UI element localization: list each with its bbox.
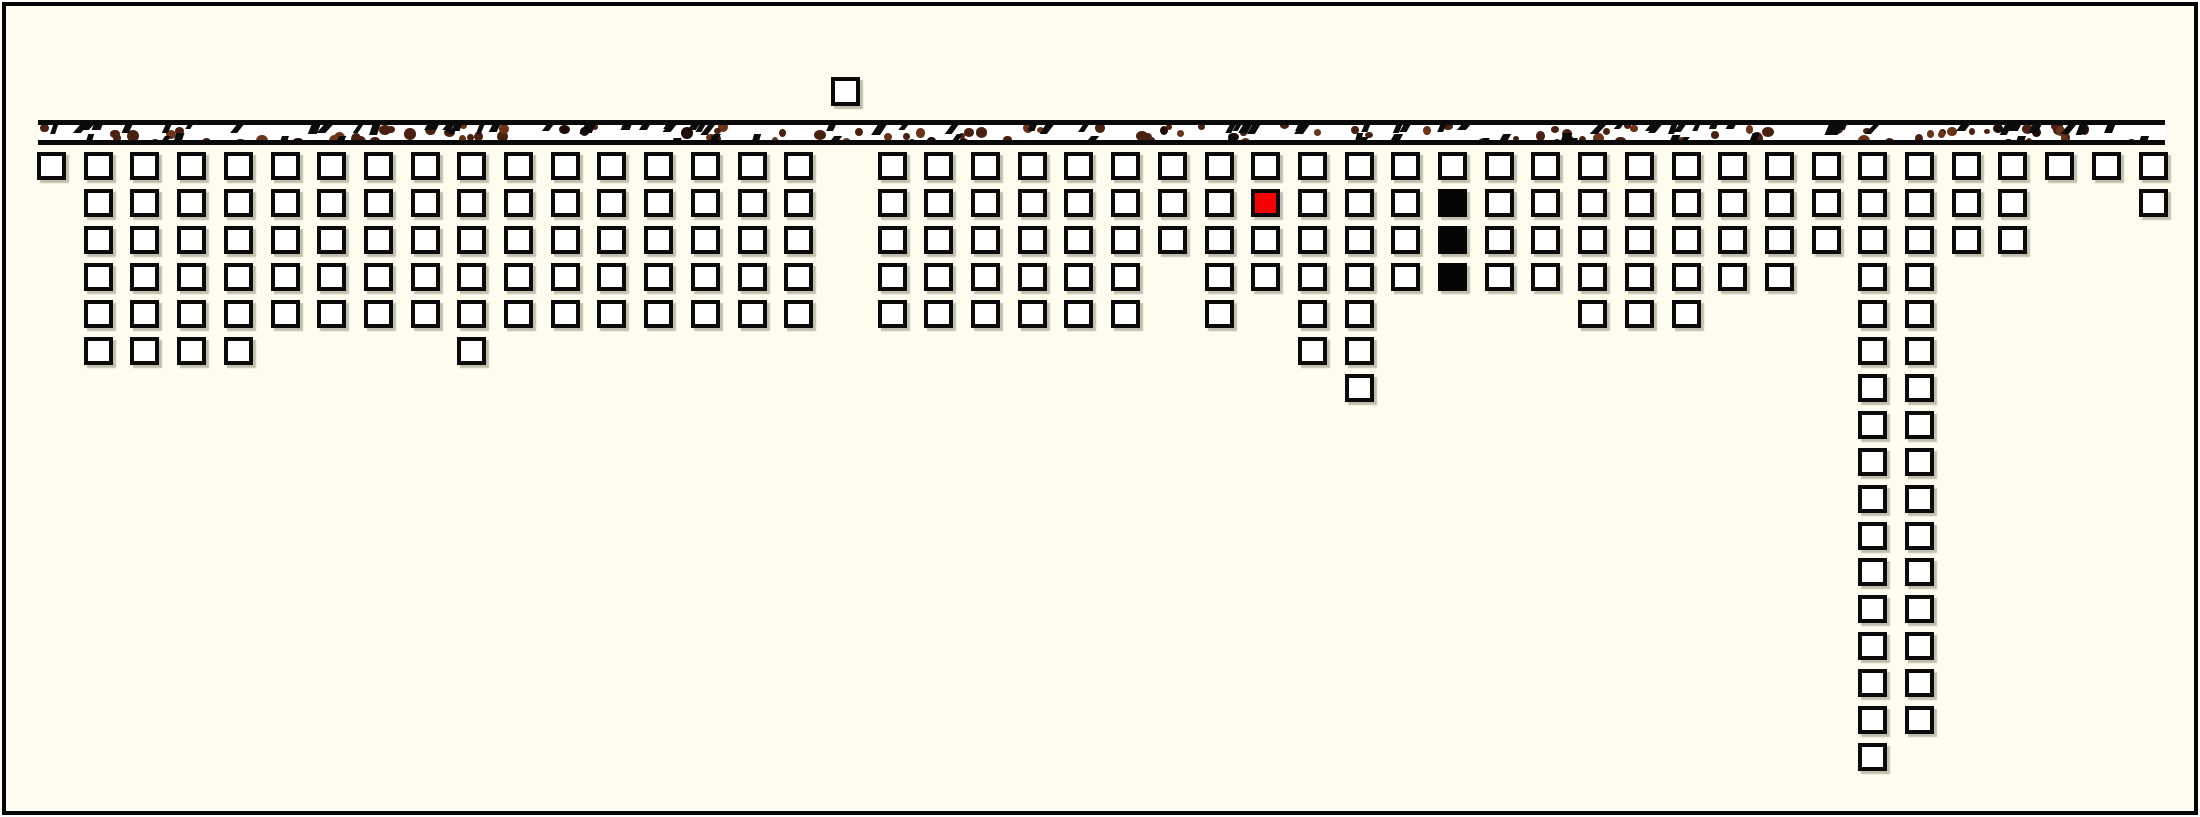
grid-cell — [971, 263, 1000, 291]
grid-cell — [457, 300, 486, 328]
grid-cell — [738, 226, 767, 254]
grid-cell — [1578, 300, 1607, 328]
grid-cell — [224, 300, 253, 328]
speckle-tick — [898, 123, 909, 130]
speckle-blob — [884, 133, 892, 141]
grid-cell — [1905, 669, 1934, 697]
grid-cell — [1531, 263, 1560, 291]
grid-cell — [784, 189, 813, 217]
grid-cell — [1485, 189, 1514, 217]
grid-cell — [691, 226, 720, 254]
speckle-blob — [150, 139, 160, 145]
speckle-tick — [336, 136, 346, 142]
grid-cell — [411, 226, 440, 254]
grid-cell — [738, 189, 767, 217]
grid-cell — [1672, 300, 1701, 328]
grid-cell — [1018, 226, 1047, 254]
grid-cell — [691, 263, 720, 291]
grid-cell — [1064, 226, 1093, 254]
speckle-blob — [976, 127, 988, 138]
grid-cell — [364, 226, 393, 254]
speckle-tick — [86, 134, 95, 142]
speckle-blob — [1938, 131, 1945, 138]
grid-cell — [924, 189, 953, 217]
speckle-tick — [1078, 123, 1090, 132]
grid-cell — [317, 152, 346, 180]
grid-cell — [644, 226, 673, 254]
speckle-blob — [499, 124, 509, 134]
grid-cell — [1298, 300, 1327, 328]
grid-cell — [1158, 152, 1187, 180]
speckle-blob — [779, 129, 786, 137]
grid-cell — [457, 263, 486, 291]
grid-cell — [224, 226, 253, 254]
speckle-blob — [916, 128, 924, 138]
speckle-tick — [230, 123, 244, 133]
grid-cell — [1858, 595, 1887, 623]
grid-cell — [1905, 595, 1934, 623]
grid-cell — [1298, 263, 1327, 291]
grid-cell — [130, 152, 159, 180]
speckle-blob — [2124, 142, 2133, 145]
speckle-blob — [1618, 141, 1625, 145]
grid-cell — [597, 300, 626, 328]
speckle-blob — [2026, 138, 2032, 144]
grid-cell — [924, 263, 953, 291]
block-columns-canvas — [0, 0, 2200, 817]
grid-cell — [1905, 632, 1934, 660]
grid-cell — [1672, 226, 1701, 254]
grid-cell — [1905, 263, 1934, 291]
speckle-blob — [1593, 133, 1604, 144]
grid-cell — [317, 300, 346, 328]
grid-cell — [130, 226, 159, 254]
grid-cell — [784, 263, 813, 291]
grid-cell — [1391, 226, 1420, 254]
grid-cell — [411, 300, 440, 328]
grid-cell — [84, 189, 113, 217]
speckle-blob — [1166, 124, 1172, 130]
speckle-blob — [2061, 135, 2068, 142]
grid-cell — [878, 189, 907, 217]
grid-cell — [1905, 706, 1934, 734]
grid-cell — [1625, 189, 1654, 217]
speckle-blob — [2009, 141, 2020, 145]
speckle-blob — [115, 141, 123, 145]
grid-cell — [878, 226, 907, 254]
speckle-blob — [1314, 129, 1321, 136]
speckle-tick — [353, 123, 365, 133]
grid-cell — [1018, 189, 1047, 217]
speckle-blob — [1615, 137, 1626, 145]
grid-cell — [130, 300, 159, 328]
grid-cell — [1905, 448, 1934, 476]
grid-cell — [738, 263, 767, 291]
speckle-blob — [638, 140, 649, 145]
speckle-blob — [340, 141, 351, 145]
grid-cell — [1251, 263, 1280, 291]
grid-cell — [1858, 632, 1887, 660]
grid-cell — [1205, 226, 1234, 254]
grid-cell — [84, 263, 113, 291]
grid-cell — [691, 189, 720, 217]
speckle-blob — [1280, 121, 1289, 129]
black-cell — [1438, 263, 1467, 291]
grid-cell — [1672, 152, 1701, 180]
speckle-blob — [1177, 130, 1184, 137]
grid-cell — [1531, 152, 1560, 180]
speckle-blob — [1984, 129, 1990, 134]
speckle-blob — [120, 140, 130, 145]
speckle-blob — [814, 130, 826, 140]
grid-cell — [1812, 226, 1841, 254]
grid-cell — [2139, 152, 2168, 180]
speckle-tick — [621, 123, 632, 130]
speckle-blob — [1762, 127, 1774, 137]
grid-cell — [878, 263, 907, 291]
speckle-blob — [559, 125, 570, 134]
grid-cell — [597, 189, 626, 217]
grid-cell — [1905, 558, 1934, 586]
black-cell — [1438, 189, 1467, 217]
grid-cell — [1345, 374, 1374, 402]
grid-cell — [1018, 152, 1047, 180]
grid-cell — [1952, 189, 1981, 217]
speckle-blob — [927, 137, 936, 145]
grid-cell — [1672, 263, 1701, 291]
grid-cell — [317, 263, 346, 291]
grid-cell — [1111, 152, 1140, 180]
grid-cell — [691, 152, 720, 180]
grid-cell — [1905, 374, 1934, 402]
grid-cell — [878, 300, 907, 328]
grid-cell — [1298, 189, 1327, 217]
speckle-blob — [1346, 142, 1353, 145]
grid-cell — [504, 152, 533, 180]
grid-cell — [971, 300, 1000, 328]
floating-cell — [831, 77, 860, 106]
grid-cell — [1345, 263, 1374, 291]
grid-cell — [1111, 226, 1140, 254]
grid-cell — [1858, 558, 1887, 586]
grid-cell — [1718, 152, 1747, 180]
grid-cell — [1064, 300, 1093, 328]
grid-cell — [224, 263, 253, 291]
grid-cell — [1858, 522, 1887, 550]
grid-cell — [784, 226, 813, 254]
grid-cell — [1205, 189, 1234, 217]
speckle-blob — [40, 124, 48, 133]
grid-cell — [84, 300, 113, 328]
grid-cell — [551, 263, 580, 291]
grid-cell — [37, 152, 66, 180]
grid-cell — [317, 226, 346, 254]
grid-cell — [1765, 189, 1794, 217]
speckle-tick — [50, 123, 59, 134]
speckle-blob — [1630, 125, 1637, 133]
speckle-blob — [467, 134, 474, 141]
grid-cell — [411, 152, 440, 180]
grid-cell — [364, 263, 393, 291]
speckle-blob — [1579, 136, 1586, 144]
grid-cell — [130, 337, 159, 365]
grid-cell — [177, 300, 206, 328]
grid-cell — [1485, 263, 1514, 291]
speckle-blob — [772, 137, 778, 143]
grid-cell — [1858, 411, 1887, 439]
red-cell — [1251, 189, 1280, 217]
grid-cell — [1858, 226, 1887, 254]
grid-cell — [1391, 189, 1420, 217]
speckle-blob — [90, 140, 99, 145]
grid-cell — [457, 337, 486, 365]
grid-cell — [597, 263, 626, 291]
grid-cell — [1998, 152, 2027, 180]
grid-cell — [1625, 152, 1654, 180]
grid-cell — [1064, 189, 1093, 217]
black-cell — [1438, 226, 1467, 254]
grid-cell — [1765, 226, 1794, 254]
grid-cell — [1205, 300, 1234, 328]
speckle-tick — [280, 136, 289, 142]
grid-cell — [411, 263, 440, 291]
grid-cell — [738, 152, 767, 180]
grid-cell — [1858, 669, 1887, 697]
grid-cell — [551, 226, 580, 254]
grid-cell — [1018, 300, 1047, 328]
grid-cell — [1064, 263, 1093, 291]
speckle-blob — [1198, 123, 1204, 130]
grid-cell — [84, 337, 113, 365]
speckle-blob — [1927, 130, 1934, 138]
speckle-tick — [542, 123, 555, 131]
grid-cell — [1812, 189, 1841, 217]
speckle-tick — [1390, 134, 1403, 142]
grid-cell — [364, 300, 393, 328]
grid-cell — [364, 189, 393, 217]
grid-cell — [691, 300, 720, 328]
grid-cell — [504, 263, 533, 291]
grid-cell — [177, 337, 206, 365]
grid-cell — [1064, 152, 1093, 180]
speckle-tick — [185, 123, 194, 129]
speckle-blob — [952, 142, 963, 145]
grid-cell — [1905, 300, 1934, 328]
speckle-tick — [945, 123, 960, 134]
speckle-blob — [1095, 123, 1105, 133]
speckle-blob — [1241, 138, 1250, 145]
speckle-tick — [174, 133, 185, 142]
speckle-blob — [235, 139, 246, 145]
grid-cell — [130, 263, 159, 291]
speckle-tick — [1499, 134, 1512, 142]
speckle-blob — [1030, 141, 1037, 145]
grid-cell — [1718, 189, 1747, 217]
speckle-tick — [827, 123, 837, 131]
grid-cell — [924, 300, 953, 328]
speckle-blob — [416, 140, 427, 145]
grid-cell — [2045, 152, 2074, 180]
grid-cell — [551, 300, 580, 328]
grid-cell — [971, 226, 1000, 254]
speckle-tick — [1561, 133, 1572, 142]
speckle-tick — [2016, 136, 2026, 142]
grid-cell — [1531, 226, 1560, 254]
speckle-blob — [1136, 131, 1148, 141]
grid-cell — [644, 300, 673, 328]
grid-cell — [177, 263, 206, 291]
speckle-blob — [1553, 139, 1561, 145]
grid-cell — [1905, 485, 1934, 513]
grid-cell — [271, 189, 300, 217]
grid-cell — [878, 152, 907, 180]
grid-cell — [1625, 263, 1654, 291]
speckle-blob — [256, 135, 268, 145]
grid-cell — [1578, 263, 1607, 291]
speckle-blob — [404, 128, 416, 140]
grid-cell — [1345, 337, 1374, 365]
speckle-blob — [1608, 141, 1618, 145]
grid-cell — [1905, 337, 1934, 365]
speckle-blob — [1885, 138, 1894, 145]
speckle-tick — [639, 123, 652, 130]
grid-cell — [1858, 743, 1887, 771]
grid-cell — [644, 263, 673, 291]
grid-cell — [1858, 152, 1887, 180]
grid-cell — [971, 152, 1000, 180]
grid-cell — [551, 189, 580, 217]
grid-cell — [2092, 152, 2121, 180]
grid-cell — [1111, 189, 1140, 217]
grid-cell — [1018, 263, 1047, 291]
speckle-blob — [334, 140, 343, 145]
grid-cell — [364, 152, 393, 180]
grid-cell — [1578, 189, 1607, 217]
grid-cell — [1438, 152, 1467, 180]
speckle-tick — [1709, 123, 1718, 129]
speckle-blob — [522, 141, 530, 145]
speckle-tick — [1086, 136, 1098, 142]
grid-cell — [1765, 152, 1794, 180]
speckle-blob — [959, 139, 968, 145]
speckle-blob — [1969, 128, 1975, 135]
grid-cell — [1858, 706, 1887, 734]
grid-cell — [1858, 448, 1887, 476]
grid-cell — [1905, 189, 1934, 217]
speckle-blob — [292, 138, 303, 145]
speckle-tick — [1613, 123, 1624, 129]
speckle-tick — [1457, 123, 1471, 130]
grid-cell — [784, 300, 813, 328]
speckle-tick — [830, 136, 842, 142]
speckle-blob — [1915, 134, 1923, 143]
grid-cell — [1578, 152, 1607, 180]
grid-cell — [1672, 189, 1701, 217]
grid-cell — [2139, 189, 2168, 217]
speckle-blob — [459, 135, 466, 143]
speckle-blob — [1003, 136, 1012, 144]
speckle-tick — [1483, 138, 1491, 142]
grid-cell — [1812, 152, 1841, 180]
grid-cell — [1485, 152, 1514, 180]
grid-cell — [1298, 152, 1327, 180]
grid-cell — [1858, 189, 1887, 217]
grid-cell — [1391, 152, 1420, 180]
speckle-blob — [964, 128, 974, 136]
grid-cell — [1158, 226, 1187, 254]
grid-cell — [1858, 485, 1887, 513]
speckle-tick — [2104, 123, 2116, 133]
grid-cell — [1298, 337, 1327, 365]
grid-cell — [1158, 189, 1187, 217]
grid-cell — [1345, 152, 1374, 180]
grid-cell — [177, 189, 206, 217]
ground-strip — [38, 120, 2165, 145]
grid-cell — [224, 152, 253, 180]
grid-cell — [84, 226, 113, 254]
grid-cell — [224, 337, 253, 365]
grid-cell — [411, 189, 440, 217]
grid-cell — [1998, 226, 2027, 254]
grid-cell — [504, 226, 533, 254]
speckle-blob — [379, 125, 391, 136]
grid-cell — [971, 189, 1000, 217]
speckle-tick — [1027, 123, 1037, 131]
speckle-tick — [1227, 137, 1236, 142]
speckle-tick — [92, 123, 103, 130]
grid-cell — [271, 152, 300, 180]
grid-cell — [644, 152, 673, 180]
grid-cell — [1345, 226, 1374, 254]
grid-cell — [1531, 189, 1560, 217]
grid-cell — [224, 189, 253, 217]
speckle-blob — [381, 141, 393, 145]
speckle-blob — [110, 130, 119, 138]
grid-cell — [1251, 226, 1280, 254]
speckle-blob — [1350, 141, 1361, 145]
grid-cell — [504, 189, 533, 217]
grid-cell — [504, 300, 533, 328]
speckle-blob — [855, 128, 863, 136]
speckle-blob — [384, 140, 390, 145]
speckle-blob — [2126, 139, 2137, 145]
grid-cell — [1625, 226, 1654, 254]
grid-cell — [1251, 152, 1280, 180]
grid-cell — [1905, 522, 1934, 550]
speckle-blob — [842, 138, 852, 145]
grid-cell — [1205, 263, 1234, 291]
speckle-blob — [1221, 140, 1232, 145]
speckle-blob — [749, 142, 759, 145]
grid-cell — [784, 152, 813, 180]
grid-cell — [1625, 300, 1654, 328]
speckle-tick — [428, 123, 439, 130]
speckle-blob — [202, 138, 210, 145]
grid-cell — [924, 152, 953, 180]
grid-cell — [738, 300, 767, 328]
speckle-blob — [370, 137, 379, 145]
grid-cell — [1952, 152, 1981, 180]
grid-cell — [1952, 226, 1981, 254]
grid-cell — [1111, 300, 1140, 328]
speckle-tick — [1838, 123, 1847, 130]
grid-cell — [1485, 226, 1514, 254]
grid-cell — [1391, 263, 1420, 291]
grid-cell — [1905, 226, 1934, 254]
grid-cell — [457, 226, 486, 254]
speckle-blob — [1536, 131, 1545, 141]
grid-cell — [1905, 411, 1934, 439]
